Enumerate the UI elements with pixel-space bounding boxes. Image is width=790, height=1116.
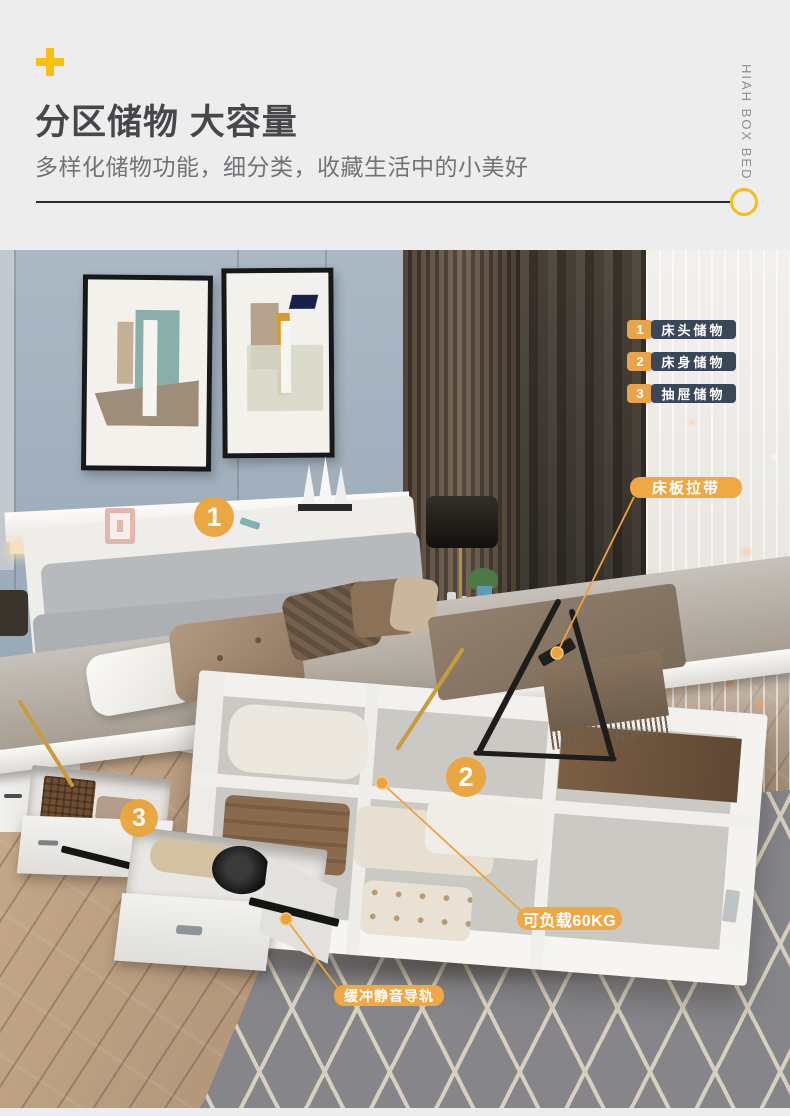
wall-art-left (81, 274, 213, 471)
legend-row-drawer: 3 抽屉储物 (627, 384, 736, 403)
callout-label-bed-board-strap: 床板拉带 (630, 477, 742, 498)
page-title: 分区储物 大容量 (35, 94, 298, 145)
legend-label: 床身储物 (651, 352, 736, 371)
figurine (302, 464, 316, 506)
callout-label-silent-rail: 缓冲静音导轨 (334, 985, 444, 1006)
art-shape (143, 320, 158, 416)
art-shape (289, 295, 318, 309)
art-shape (281, 321, 292, 393)
wall-art-right (221, 268, 334, 459)
badge-3-drawer: 3 (120, 799, 158, 837)
stored-white-towel (424, 796, 546, 861)
drawer-handle (176, 925, 203, 936)
figurine (318, 456, 333, 506)
product-photo: 1 床头储物 2 床身储物 3 抽屉储物 床板拉带 可负载60KG 缓冲静音导轨… (0, 250, 790, 1108)
divider-line (36, 201, 730, 203)
stored-lace-cloth (359, 880, 473, 942)
badge-1-headboard: 1 (194, 497, 234, 537)
brand-vertical-text: HIAH BOX BED (739, 64, 754, 184)
legend-label: 抽屉储物 (651, 384, 736, 403)
floor-lamp-shade (426, 496, 498, 548)
callout-label-load-capacity: 可负载60KG (517, 907, 622, 930)
plus-icon-vbar (46, 48, 54, 76)
legend-label: 床头储物 (651, 320, 736, 339)
city-lights-bokeh (0, 250, 4, 254)
table-lamp-shade (0, 590, 28, 636)
legend-row-bedbody: 2 床身储物 (627, 352, 736, 371)
badge-2-bedbody: 2 (446, 757, 486, 797)
legend-num-badge: 2 (627, 352, 653, 371)
storage-legend: 1 床头储物 2 床身储物 3 抽屉储物 (627, 320, 736, 403)
stored-white-pillow (226, 703, 371, 782)
photo-frame-decor (105, 508, 135, 544)
legend-num-badge: 3 (627, 384, 653, 403)
page-subtitle: 多样化储物功能，细分类，收藏生活中的小美好 (35, 148, 529, 182)
wall-seam (14, 250, 16, 610)
pillow-button (217, 655, 224, 662)
legend-num-badge: 1 (627, 320, 653, 339)
figurine-base (298, 504, 352, 511)
pillow-button (255, 637, 262, 644)
wood-slat-shading (403, 250, 533, 615)
accent-circle-icon (730, 188, 758, 216)
drawer-handle (38, 840, 59, 846)
figurine (334, 466, 348, 506)
page: 分区储物 大容量 多样化储物功能，细分类，收藏生活中的小美好 HIAH BOX … (0, 0, 790, 1116)
legend-row-headboard: 1 床头储物 (627, 320, 736, 339)
art-shape (117, 322, 134, 384)
nightstand-handle (4, 794, 22, 798)
